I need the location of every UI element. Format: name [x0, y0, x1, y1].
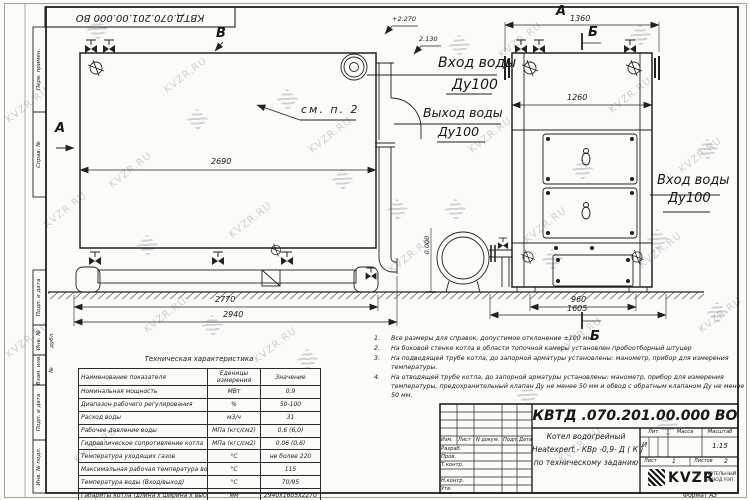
- margin-label: Подп. и дата: [33, 385, 46, 440]
- note-number: 4.: [374, 375, 380, 381]
- note-number: 1.: [374, 336, 380, 342]
- table-row: Габариты котла (длина х ширина х высота)…: [79, 489, 321, 500]
- note-text: На отводящей трубе котла, до запорной ар…: [391, 375, 724, 381]
- side-view: [56, 26, 501, 326]
- note-text: На подводящей трубе котла, до запорной а…: [391, 356, 729, 362]
- water-outlet-label: Выход воды: [423, 107, 503, 120]
- dim-960: 960: [571, 296, 586, 304]
- lit-label: Лит.: [640, 430, 668, 435]
- row-ncontrol: Н.контр.: [441, 479, 464, 484]
- table-row: Расход водым3/ч31: [79, 411, 321, 424]
- note-text: 50 мм.: [391, 393, 413, 399]
- margin-label: Перв. примен.: [33, 27, 46, 112]
- tech-table-header: Наименование показателя Еденицы измерени…: [79, 369, 321, 386]
- col-izm: Изм.: [441, 438, 453, 443]
- dim-2770: 2770: [215, 296, 235, 304]
- margin-label: Инв. № дубл.: [33, 325, 46, 355]
- dim-1605: 1605: [567, 305, 587, 313]
- col-units-header: Еденицы измерения: [208, 369, 261, 386]
- table-row: Температура уходящих газов°Сне более 220: [79, 450, 321, 463]
- row-checked: Пров.: [441, 455, 456, 460]
- section-b-top: Б: [588, 26, 598, 39]
- row-tcontrol: Т.контр.: [441, 463, 463, 468]
- mass-label: Масса: [668, 430, 702, 435]
- water-inlet-label: Вход воды: [438, 56, 516, 70]
- table-row: Гидравлическое сопротивление котлаМПа (к…: [79, 437, 321, 450]
- kvzr-logo-icon: [648, 469, 665, 486]
- water-inlet-dn: Ду100: [452, 78, 498, 92]
- scale-value: 1:15: [702, 443, 738, 450]
- view-label-a: А: [55, 122, 65, 135]
- note-text: Все размеры для справок, допустимое откл…: [391, 336, 594, 342]
- col-doc: N докум.: [476, 438, 499, 443]
- dim-2940: 2940: [223, 311, 243, 319]
- scale-label: Масштаб: [702, 430, 738, 435]
- row-approved: Утв.: [441, 487, 452, 492]
- sheet-label: Лист: [644, 459, 657, 464]
- table-row: Номинальная мощностьМВт0,9: [79, 386, 321, 399]
- see-note-callout: см. п. 2: [301, 104, 360, 115]
- dim-1260: 1260: [567, 94, 587, 102]
- top-stamp: КВТД.070.201.00.000 ВО: [45, 7, 235, 27]
- col-list: Лист: [458, 438, 471, 443]
- note-text: На боковой стенке котла в области топочн…: [391, 346, 692, 352]
- part-name: Котел водогрейный: [532, 433, 640, 441]
- table-row: Рабочее давление водыМПа (кгс/см2)0,6 (6…: [79, 424, 321, 437]
- note-text: температуры, предохранительный клапан Ду…: [391, 384, 744, 390]
- col-date: Дата: [519, 438, 532, 443]
- sheet-value: 1: [672, 459, 676, 465]
- water-outlet-dn: Ду100: [438, 126, 479, 139]
- sheets-value: 2: [724, 459, 728, 465]
- table-row: Температура воды (Вход/выход)°С70/95: [79, 476, 321, 489]
- lit-value: И: [640, 442, 649, 449]
- elevation-inlet: 2.130: [419, 36, 438, 43]
- row-developed: Разраб.: [441, 447, 461, 452]
- table-row: Диапазон рабочего регулирования%50-100: [79, 398, 321, 411]
- sheets-label: Листов: [694, 459, 713, 464]
- margin-label: Подп. и дата: [33, 270, 46, 325]
- company-name: ЗАВОД РЭП: [706, 479, 733, 484]
- margin-label: Взам. инв. №: [33, 355, 46, 385]
- front-view-label: А: [556, 5, 566, 18]
- drawing-sheet: KVZR.RU KVZR.RU KVZR.RU KVZR.RU KVZR.RU …: [0, 0, 750, 500]
- company-name: КОТЕЛЬНЫЙ: [706, 473, 736, 478]
- tech-table-title: Техническая характеристика: [78, 356, 320, 363]
- col-name-header: Наименование показателя: [79, 369, 208, 386]
- dim-2690: 2690: [211, 158, 231, 166]
- format-note: Формат А3: [655, 493, 745, 499]
- table-row: Максимальная рабочая температура воды°С1…: [79, 463, 321, 476]
- note-text: температуры.: [391, 365, 438, 371]
- view-label-b: В: [216, 27, 226, 40]
- doc-number: КВТД .070.201.00.000 ВО: [532, 409, 738, 423]
- note-number: 2.: [374, 346, 380, 352]
- elevation-top: +2.270: [392, 16, 416, 23]
- part-name: по техническому заданию: [532, 459, 640, 467]
- front-inlet-label: Вход воды: [657, 174, 730, 187]
- col-sign: Подп.: [503, 438, 518, 443]
- ground-hatching: [48, 292, 704, 299]
- elevation-ground: 0.000: [424, 227, 431, 263]
- note-number: 3.: [374, 356, 380, 362]
- front-inlet-dn: Ду100: [668, 192, 711, 205]
- margin-label: Инв. № подл.: [33, 440, 46, 493]
- margin-label: Справ. №: [33, 112, 46, 197]
- tech-table: Наименование показателя Еденицы измерени…: [78, 368, 321, 500]
- dim-1360: 1360: [570, 15, 590, 23]
- part-name: Heatexpert - КВр -0,9- Д ( К ): [532, 446, 640, 454]
- col-value-header: Значение: [261, 369, 321, 386]
